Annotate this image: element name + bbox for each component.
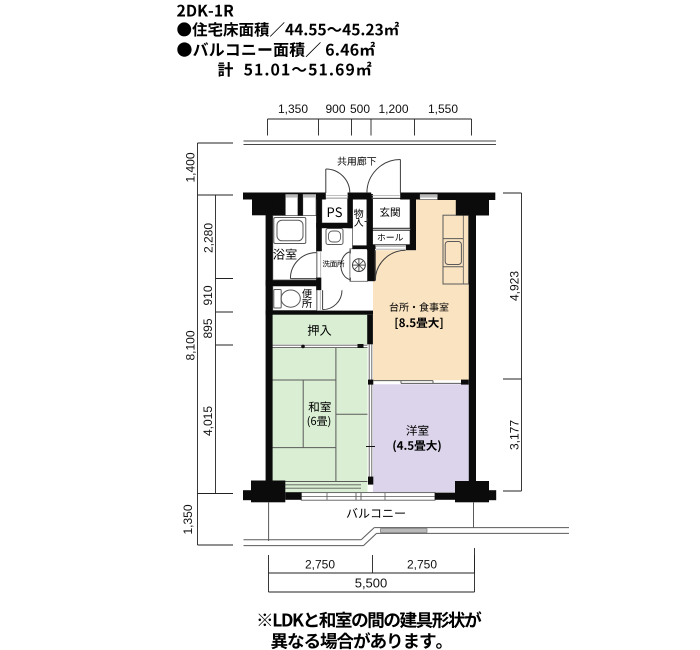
svg-text:2,280: 2,280 [202,223,216,253]
svg-text:3,177: 3,177 [508,420,522,450]
svg-text:1,350: 1,350 [181,504,195,534]
svg-text:2,750: 2,750 [305,558,335,572]
svg-text:1,200: 1,200 [378,102,408,116]
svg-text:4,015: 4,015 [201,406,215,436]
svg-text:8,100: 8,100 [184,330,198,360]
svg-text:1,400: 1,400 [184,152,198,182]
svg-text:1,350: 1,350 [278,102,308,116]
svg-text:4,923: 4,923 [508,271,522,301]
svg-text:2,750: 2,750 [407,558,437,572]
svg-text:5,500: 5,500 [355,576,388,591]
svg-text:895: 895 [201,318,215,338]
svg-text:500: 500 [350,102,370,116]
svg-text:900: 900 [325,102,345,116]
svg-text:1,550: 1,550 [428,102,458,116]
svg-text:910: 910 [201,285,215,305]
